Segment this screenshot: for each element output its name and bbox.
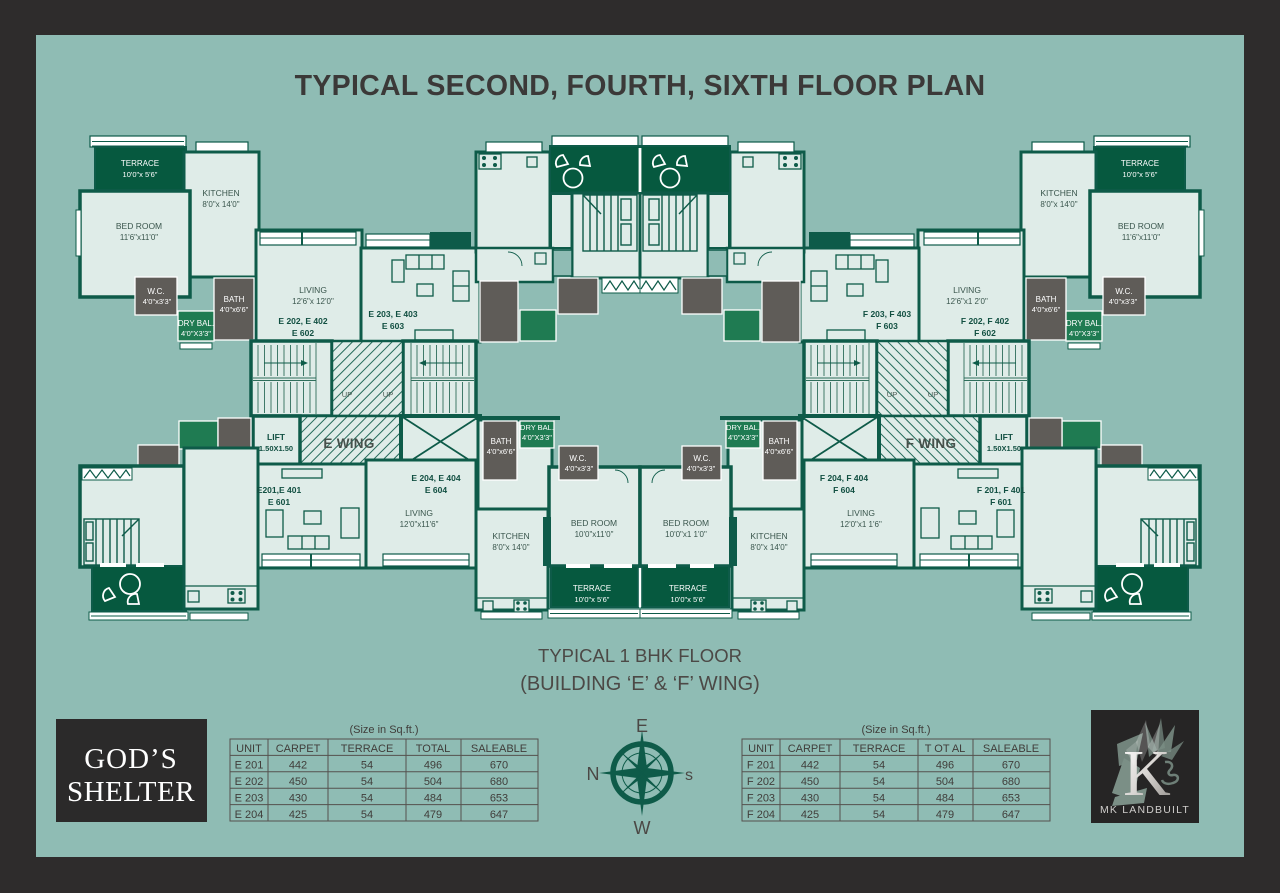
svg-text:4'0"x3'3": 4'0"x3'3" — [687, 464, 716, 473]
svg-text:UNIT: UNIT — [236, 743, 262, 755]
svg-text:12'6"x 12'0": 12'6"x 12'0" — [292, 297, 334, 306]
svg-text:BED ROOM: BED ROOM — [1118, 221, 1164, 231]
svg-text:10'0"x 5'6": 10'0"x 5'6" — [671, 595, 706, 604]
svg-text:SALEABLE: SALEABLE — [983, 743, 1039, 755]
svg-text:DRY BAL.: DRY BAL. — [520, 423, 554, 432]
svg-text:TERRACE: TERRACE — [341, 743, 394, 755]
svg-text:TERRACE: TERRACE — [853, 743, 906, 755]
svg-text:DRY BAL.: DRY BAL. — [1066, 319, 1102, 328]
svg-text:LIVING: LIVING — [299, 285, 327, 295]
svg-text:CARPET: CARPET — [788, 743, 833, 755]
svg-text:496: 496 — [936, 760, 954, 772]
svg-text:E 203, E 403: E 203, E 403 — [368, 309, 417, 319]
svg-text:10'0"x1 1'0": 10'0"x1 1'0" — [665, 530, 707, 539]
svg-text:653: 653 — [490, 792, 508, 804]
svg-text:F 204: F 204 — [747, 809, 775, 821]
svg-text:54: 54 — [873, 792, 885, 804]
svg-text:54: 54 — [873, 809, 885, 821]
svg-text:10'0"x 5'6": 10'0"x 5'6" — [1123, 170, 1158, 179]
svg-text:GOD’S: GOD’S — [84, 743, 178, 775]
svg-text:430: 430 — [289, 792, 307, 804]
svg-text:F 203: F 203 — [747, 792, 775, 804]
svg-text:680: 680 — [1002, 776, 1020, 788]
svg-text:653: 653 — [1002, 792, 1020, 804]
svg-text:LIVING: LIVING — [847, 508, 875, 518]
svg-text:479: 479 — [424, 809, 442, 821]
svg-text:425: 425 — [289, 809, 307, 821]
svg-text:F 204, F 404: F 204, F 404 — [820, 473, 868, 483]
svg-text:SALEABLE: SALEABLE — [471, 743, 527, 755]
svg-text:E 202, E 402: E 202, E 402 — [278, 316, 327, 326]
svg-text:8'0"x 14'0": 8'0"x 14'0" — [202, 200, 239, 209]
svg-text:4'0"x3'3": 4'0"x3'3" — [565, 464, 594, 473]
svg-text:TERRACE: TERRACE — [121, 159, 159, 168]
svg-text:4'0"X3'3": 4'0"X3'3" — [728, 433, 758, 442]
svg-text:670: 670 — [490, 760, 508, 772]
svg-text:4'0"x6'6": 4'0"x6'6" — [487, 447, 516, 456]
svg-text:W.C.: W.C. — [693, 454, 710, 463]
svg-text:UP: UP — [383, 390, 393, 399]
svg-text:12'0"x11'6": 12'0"x11'6" — [400, 520, 439, 529]
svg-text:E 204, E 404: E 204, E 404 — [411, 473, 460, 483]
svg-text:E 204: E 204 — [235, 809, 264, 821]
svg-text:450: 450 — [801, 776, 819, 788]
svg-text:BATH: BATH — [224, 295, 245, 304]
svg-text:F 601: F 601 — [990, 497, 1012, 507]
svg-text:11'6"x11'0": 11'6"x11'0" — [1122, 233, 1160, 242]
svg-text:8'0"x 14'0": 8'0"x 14'0" — [750, 543, 787, 552]
svg-text:F 602: F 602 — [974, 328, 996, 338]
svg-text:647: 647 — [1002, 809, 1020, 821]
svg-text:F WING: F WING — [906, 436, 957, 451]
svg-text:11'6"x11'0": 11'6"x11'0" — [120, 233, 158, 242]
svg-text:425: 425 — [801, 809, 819, 821]
svg-text:W.C.: W.C. — [569, 454, 586, 463]
svg-text:KITCHEN: KITCHEN — [492, 531, 529, 541]
svg-text:442: 442 — [289, 760, 307, 772]
svg-text:SHELTER: SHELTER — [67, 776, 195, 808]
svg-text:(Size in Sq.ft.): (Size in Sq.ft.) — [861, 724, 930, 736]
svg-text:DRY BAL.: DRY BAL. — [178, 319, 214, 328]
svg-text:N: N — [587, 764, 600, 784]
svg-text:LIFT: LIFT — [267, 432, 286, 442]
svg-text:E 603: E 603 — [382, 321, 404, 331]
svg-text:TOTAL: TOTAL — [416, 743, 450, 755]
svg-text:TYPICAL 1 BHK FLOOR: TYPICAL 1 BHK FLOOR — [538, 645, 742, 666]
svg-text:TYPICAL SECOND, FOURTH, SIXTH: TYPICAL SECOND, FOURTH, SIXTH FLOOR PLAN — [295, 70, 986, 102]
svg-text:10'0"x11'0": 10'0"x11'0" — [575, 530, 614, 539]
svg-text:KITCHEN: KITCHEN — [1040, 188, 1077, 198]
svg-text:BED ROOM: BED ROOM — [571, 518, 617, 528]
svg-text:E WING: E WING — [323, 436, 374, 451]
svg-text:LIFT: LIFT — [995, 432, 1014, 442]
svg-text:680: 680 — [490, 776, 508, 788]
svg-text:4'0"x3'3": 4'0"x3'3" — [143, 297, 172, 306]
svg-text:4'0"x6'6": 4'0"x6'6" — [220, 305, 249, 314]
svg-text:4'0"X3'3": 4'0"X3'3" — [181, 329, 211, 338]
svg-text:W.C.: W.C. — [147, 287, 164, 296]
svg-text:496: 496 — [424, 760, 442, 772]
svg-text:1.50X1.50: 1.50X1.50 — [259, 444, 293, 453]
svg-text:430: 430 — [801, 792, 819, 804]
svg-text:8'0"x 14'0": 8'0"x 14'0" — [492, 543, 529, 552]
svg-text:BATH: BATH — [1036, 295, 1057, 304]
svg-text:BED ROOM: BED ROOM — [116, 221, 162, 231]
svg-text:504: 504 — [936, 776, 954, 788]
svg-text:E 201: E 201 — [235, 760, 264, 772]
svg-text:670: 670 — [1002, 760, 1020, 772]
svg-text:10'0"x 5'6": 10'0"x 5'6" — [123, 170, 158, 179]
svg-text:54: 54 — [873, 776, 885, 788]
svg-text:s: s — [685, 767, 693, 784]
svg-text:F 604: F 604 — [833, 485, 855, 495]
svg-text:484: 484 — [936, 792, 954, 804]
svg-text:BATH: BATH — [769, 437, 790, 446]
svg-text:F 603: F 603 — [876, 321, 898, 331]
svg-text:54: 54 — [361, 776, 373, 788]
svg-text:1.50X1.50: 1.50X1.50 — [987, 444, 1021, 453]
svg-text:UNIT: UNIT — [748, 743, 774, 755]
svg-text:F 201: F 201 — [747, 760, 775, 772]
svg-text:CARPET: CARPET — [276, 743, 321, 755]
svg-text:UP: UP — [928, 390, 938, 399]
svg-text:4'0"x6'6": 4'0"x6'6" — [765, 447, 794, 456]
svg-text:(BUILDING ‘E’ & ‘F’ WING): (BUILDING ‘E’ & ‘F’ WING) — [520, 673, 760, 695]
svg-text:54: 54 — [361, 809, 373, 821]
svg-text:F 202, F 402: F 202, F 402 — [961, 316, 1009, 326]
svg-text:F 202: F 202 — [747, 776, 775, 788]
svg-text:4'0"x3'3": 4'0"x3'3" — [1109, 297, 1138, 306]
svg-text:TERRACE: TERRACE — [669, 584, 707, 593]
svg-text:E 202: E 202 — [235, 776, 264, 788]
svg-text:T OT AL: T OT AL — [925, 743, 966, 755]
svg-text:442: 442 — [801, 760, 819, 772]
svg-text:54: 54 — [361, 760, 373, 772]
svg-text:E 602: E 602 — [292, 328, 314, 338]
svg-text:4'0"X3'3": 4'0"X3'3" — [1069, 329, 1099, 338]
svg-text:4'0"X3'3": 4'0"X3'3" — [522, 433, 552, 442]
svg-text:450: 450 — [289, 776, 307, 788]
svg-text:12'0"x1 1'6": 12'0"x1 1'6" — [840, 520, 882, 529]
svg-text:DRY BAL.: DRY BAL. — [726, 423, 760, 432]
svg-text:4'0"x6'6": 4'0"x6'6" — [1032, 305, 1061, 314]
svg-text:BED ROOM: BED ROOM — [663, 518, 709, 528]
svg-text:E 604: E 604 — [425, 485, 447, 495]
svg-text:E: E — [636, 716, 648, 736]
svg-text:8'0"x 14'0": 8'0"x 14'0" — [1040, 200, 1077, 209]
svg-text:MK LANDBUILT: MK LANDBUILT — [1100, 804, 1190, 816]
svg-text:KITCHEN: KITCHEN — [750, 531, 787, 541]
svg-text:479: 479 — [936, 809, 954, 821]
svg-text:TERRACE: TERRACE — [1121, 159, 1159, 168]
svg-text:BATH: BATH — [491, 437, 512, 446]
svg-text:KITCHEN: KITCHEN — [202, 188, 239, 198]
svg-text:UP: UP — [342, 390, 352, 399]
svg-text:(Size in Sq.ft.): (Size in Sq.ft.) — [349, 724, 418, 736]
svg-text:W: W — [634, 818, 651, 838]
svg-text:484: 484 — [424, 792, 442, 804]
svg-text:E 601: E 601 — [268, 497, 290, 507]
svg-text:10'0"x 5'6": 10'0"x 5'6" — [575, 595, 610, 604]
svg-text:TERRACE: TERRACE — [573, 584, 611, 593]
svg-text:W.C.: W.C. — [1115, 287, 1132, 296]
svg-text:E201,E 401: E201,E 401 — [257, 485, 302, 495]
svg-text:F 203, F 403: F 203, F 403 — [863, 309, 911, 319]
svg-text:E 203: E 203 — [235, 792, 264, 804]
svg-text:647: 647 — [490, 809, 508, 821]
svg-text:54: 54 — [873, 760, 885, 772]
svg-text:LIVING: LIVING — [953, 285, 981, 295]
svg-text:LIVING: LIVING — [405, 508, 433, 518]
svg-text:12'6"x1 2'0": 12'6"x1 2'0" — [946, 297, 988, 306]
svg-text:504: 504 — [424, 776, 442, 788]
svg-text:UP: UP — [887, 390, 897, 399]
svg-text:F 201, F 401: F 201, F 401 — [977, 485, 1025, 495]
svg-text:54: 54 — [361, 792, 373, 804]
